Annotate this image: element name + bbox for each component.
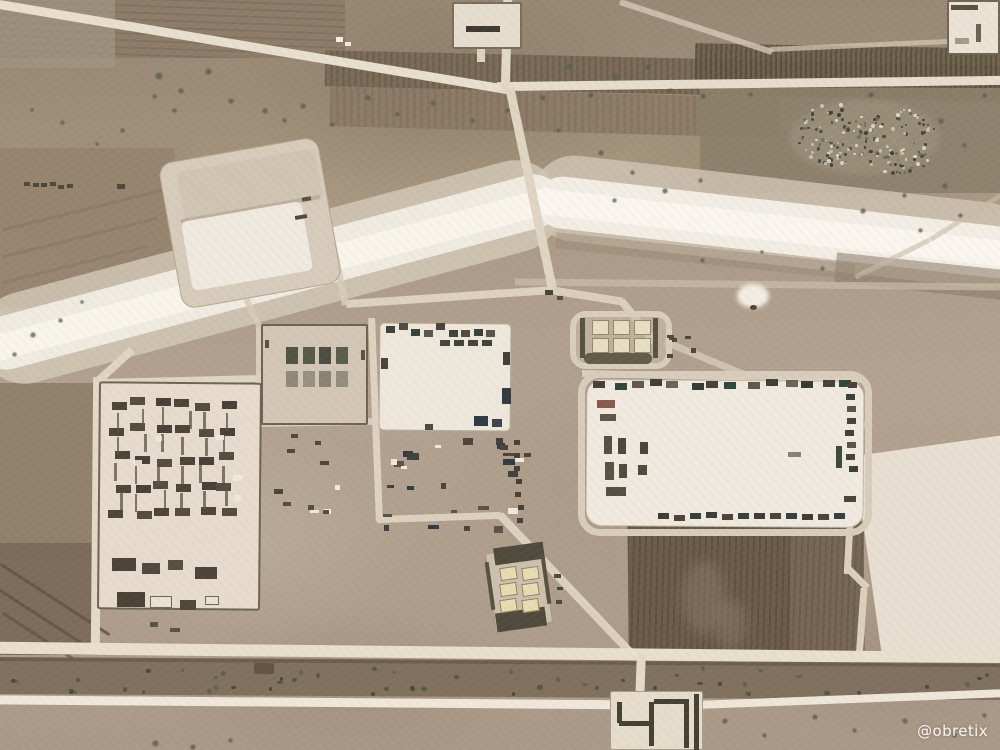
boneyard-speckle-east bbox=[926, 159, 928, 161]
equipment-scatter-field bbox=[500, 445, 508, 450]
east-compound-top-vehicles bbox=[593, 381, 605, 388]
facility-south-east-marks bbox=[554, 574, 561, 577]
boneyard-speckle-east bbox=[922, 119, 924, 121]
boneyard-speckle-east bbox=[869, 128, 873, 132]
boneyard-speckle-west bbox=[818, 159, 821, 162]
compound-top-right-b1 bbox=[951, 5, 978, 10]
vegetation-shrub bbox=[190, 744, 196, 750]
vegetation-shrub bbox=[630, 170, 635, 175]
canal-vegetation bbox=[824, 691, 830, 694]
road-center-south-1 bbox=[377, 512, 501, 523]
junction-vehicle-1 bbox=[545, 290, 553, 295]
boneyard-speckle-east bbox=[891, 127, 895, 131]
scatter-between-compounds bbox=[310, 510, 319, 513]
boneyard-speckle-west bbox=[831, 111, 834, 114]
boneyard-speckle-west bbox=[829, 150, 833, 154]
vegetation-shrub bbox=[556, 128, 561, 133]
facility-north-cells bbox=[634, 320, 651, 335]
vegetation-shrub bbox=[30, 332, 36, 338]
facility-south-east-marks bbox=[557, 587, 563, 590]
barracks-connector-walls bbox=[135, 494, 138, 512]
truck-7-body bbox=[606, 487, 626, 496]
vegetation-shrub bbox=[12, 352, 17, 357]
barracks-row-block-a bbox=[222, 401, 237, 409]
boneyard-speckle-east bbox=[905, 158, 907, 160]
barracks-connector-walls bbox=[164, 490, 167, 508]
vegetation-shrub bbox=[962, 143, 967, 148]
compound-c-containers bbox=[449, 330, 458, 337]
canal-vegetation bbox=[556, 677, 560, 682]
vehicle-west-single bbox=[117, 184, 125, 189]
equipment-scatter-field bbox=[503, 459, 514, 465]
canal-vegetation bbox=[15, 680, 19, 683]
vegetation-shrub bbox=[330, 122, 335, 127]
barracks-south-b4 bbox=[195, 567, 217, 579]
boneyard-speckle-east bbox=[864, 131, 868, 135]
facility-south-cells bbox=[499, 566, 518, 581]
canal-vegetation bbox=[582, 683, 588, 686]
barracks-connector-walls bbox=[142, 409, 145, 427]
truck-1-body bbox=[597, 400, 617, 408]
boneyard-speckle-east bbox=[922, 123, 925, 126]
boneyard-speckle-east bbox=[882, 135, 886, 139]
compound-south-wall-5 bbox=[684, 699, 689, 748]
barracks-outer-mark-2 bbox=[170, 628, 180, 632]
canal-vegetation bbox=[392, 671, 396, 674]
vehicle-d-mid-2 bbox=[638, 465, 647, 475]
barracks-connector-walls bbox=[222, 466, 225, 484]
east-compound-bottom-row bbox=[770, 513, 781, 519]
vegetation-shrub bbox=[300, 103, 306, 109]
vehicle-row-west bbox=[24, 182, 30, 186]
facility-south-east-marks bbox=[556, 600, 562, 604]
facility-north-cells bbox=[613, 320, 630, 335]
field-plowed-south-light bbox=[790, 522, 864, 652]
boneyard-speckle-west bbox=[841, 118, 844, 121]
barracks-connector-walls bbox=[181, 466, 184, 484]
compound-b-wall-mark-2 bbox=[361, 350, 365, 360]
barracks-row-block-b bbox=[153, 481, 168, 489]
vegetation-shrub bbox=[178, 88, 184, 94]
east-compound-right-column bbox=[847, 406, 856, 412]
east-compound-bottom-row bbox=[834, 513, 845, 519]
canal-vegetation bbox=[653, 686, 657, 689]
compound-b-gray-row bbox=[336, 371, 348, 387]
equipment-line-east bbox=[517, 518, 523, 523]
canal-vegetation bbox=[509, 670, 513, 673]
boneyard-speckle-east bbox=[926, 128, 930, 132]
equipment-scatter-field bbox=[508, 508, 518, 514]
barracks-white-roofs bbox=[234, 475, 243, 479]
compound-c-containers bbox=[411, 329, 420, 336]
compound-c-containers bbox=[424, 330, 433, 337]
boneyard-speckle-west bbox=[815, 128, 818, 131]
compound-c-containers bbox=[399, 323, 408, 330]
east-compound-top-vehicles bbox=[666, 381, 678, 388]
east-compound-right-column bbox=[847, 442, 856, 448]
boneyard-speckle-west bbox=[800, 127, 803, 130]
equipment-scatter-field bbox=[407, 486, 414, 490]
boneyard-speckle-east bbox=[922, 165, 924, 167]
barracks-white-roofs bbox=[133, 460, 142, 464]
boneyard-speckle-west bbox=[840, 161, 844, 165]
barracks-connector-walls bbox=[162, 407, 165, 425]
vegetation-shrub bbox=[902, 718, 908, 724]
barracks-row-block-b bbox=[176, 484, 191, 492]
compound-c-containers-2 bbox=[482, 340, 492, 346]
barracks-south-b2 bbox=[142, 563, 160, 574]
truck-2-cab bbox=[616, 414, 622, 421]
boneyard-speckle-east bbox=[918, 153, 921, 156]
facility-north-east-dots bbox=[691, 348, 695, 353]
facility-north-cells bbox=[592, 320, 609, 335]
vegetation-shrub bbox=[700, 258, 705, 263]
compound-c-item-e2 bbox=[502, 388, 511, 404]
east-compound-top-vehicles bbox=[823, 380, 835, 387]
boneyard-speckle-west bbox=[827, 159, 831, 163]
barracks-connector-walls bbox=[114, 463, 117, 481]
barracks-south-b8 bbox=[205, 596, 219, 605]
boneyard-speckle-east bbox=[918, 122, 921, 125]
vehicle-b-south-2 bbox=[287, 449, 295, 453]
east-compound-bottom-row bbox=[802, 514, 813, 520]
boneyard-speckle-east bbox=[875, 138, 879, 142]
east-compound-top-vehicles bbox=[766, 379, 778, 386]
vegetation-shrub bbox=[80, 300, 84, 304]
canal-vegetation bbox=[747, 692, 751, 696]
boneyard-speckle-west bbox=[860, 124, 862, 126]
east-compound-bottom-row bbox=[674, 515, 685, 521]
vegetation-shrub bbox=[662, 188, 668, 194]
truck-5 bbox=[605, 462, 614, 480]
scatter-between-compounds bbox=[274, 489, 282, 494]
boneyard-speckle-west bbox=[798, 142, 800, 144]
vegetation-shrub bbox=[982, 93, 987, 98]
east-compound-top-vehicles bbox=[692, 383, 704, 390]
truck-1-cab bbox=[615, 400, 622, 408]
vegetation-shrub bbox=[860, 208, 866, 214]
boneyard-gap-west bbox=[822, 126, 842, 142]
equipment-scatter-field bbox=[391, 459, 397, 465]
east-compound-se-item bbox=[844, 496, 856, 502]
barracks-white-roofs bbox=[156, 436, 162, 441]
boneyard-speckle-east bbox=[927, 124, 929, 126]
boneyard-speckle-west bbox=[847, 148, 849, 150]
barracks-connector-walls bbox=[199, 465, 202, 483]
vegetation-shrub bbox=[852, 728, 857, 733]
boneyard-speckle-east bbox=[913, 114, 916, 117]
canal-vegetation bbox=[758, 669, 763, 673]
vegetation-shrub bbox=[612, 74, 619, 81]
boneyard-speckle-west bbox=[844, 153, 847, 156]
vegetation-shrub bbox=[120, 128, 125, 133]
boneyard-speckle-west bbox=[803, 127, 807, 131]
vegetation-shrub bbox=[228, 98, 234, 104]
canal-vegetation bbox=[146, 669, 150, 673]
facility-north-berm-s bbox=[584, 353, 652, 364]
barracks-south-b7 bbox=[180, 600, 196, 610]
boneyard-speckle-west bbox=[842, 143, 844, 145]
vegetation-shrub bbox=[612, 198, 617, 203]
boneyard-speckle-west bbox=[845, 161, 847, 163]
boneyard-speckle-east bbox=[891, 171, 895, 175]
east-compound-bottom-row bbox=[722, 514, 733, 520]
vegetation-shrub bbox=[228, 738, 233, 743]
compound-c-pad bbox=[379, 322, 512, 431]
barracks-south-b6 bbox=[150, 596, 172, 608]
east-compound-right-column bbox=[847, 418, 856, 424]
compound-c-item-s1 bbox=[474, 416, 488, 426]
equipment-scatter-field bbox=[407, 453, 418, 460]
east-compound-bottom-row bbox=[754, 513, 765, 519]
boneyard-speckle-west bbox=[815, 139, 818, 142]
east-compound-pad bbox=[585, 379, 864, 528]
east-compound-bottom-row bbox=[818, 514, 829, 520]
vegetation-shrub bbox=[918, 228, 923, 233]
vehicle-road-white-2 bbox=[345, 42, 351, 46]
barracks-connector-walls bbox=[144, 434, 147, 452]
vehicle-b-south-3 bbox=[315, 441, 321, 445]
boneyard-speckle-west bbox=[830, 163, 833, 166]
canal-vegetation bbox=[372, 667, 377, 671]
pad-far-east bbox=[854, 434, 1000, 669]
compound-c-containers bbox=[461, 330, 470, 337]
barracks-row-block-a bbox=[112, 402, 127, 410]
compound-b-gray-row bbox=[286, 371, 298, 387]
equipment-scatter-field bbox=[524, 453, 531, 457]
vegetation-shrub bbox=[760, 250, 764, 254]
boneyard-speckle-east bbox=[890, 151, 894, 155]
compound-top-right-b2 bbox=[976, 24, 981, 42]
vegetation-shrub bbox=[668, 88, 673, 93]
vegetation-shrub bbox=[95, 142, 99, 146]
vehicle-road-white-1 bbox=[336, 37, 343, 42]
east-compound-right-column bbox=[849, 466, 858, 472]
east-compound-bottom-row bbox=[706, 512, 717, 518]
barracks-row-block-a bbox=[157, 425, 172, 433]
boneyard-speckle-west bbox=[839, 152, 842, 155]
east-compound-top-vehicles bbox=[801, 381, 813, 388]
terrain-features-layer bbox=[0, 0, 1000, 750]
compound-b-gray-row bbox=[319, 371, 331, 387]
equipment-line-east bbox=[516, 479, 522, 484]
east-compound-right-column bbox=[848, 382, 857, 388]
vegetation-shrub bbox=[905, 58, 910, 63]
barracks-south-b3 bbox=[168, 560, 183, 570]
boneyard-speckle-west bbox=[805, 149, 807, 151]
compound-b-wall-mark-1 bbox=[265, 340, 269, 348]
equipment-scatter-field bbox=[401, 466, 408, 469]
compound-top-center-building bbox=[466, 26, 500, 32]
scatter-between-compounds bbox=[283, 502, 291, 506]
boneyard-speckle-east bbox=[933, 128, 935, 130]
boneyard-speckle-west bbox=[835, 119, 838, 122]
boneyard-speckle-east bbox=[924, 153, 927, 156]
barracks-connector-walls bbox=[225, 488, 228, 506]
east-compound-right-column bbox=[846, 394, 855, 400]
vegetation-shrub bbox=[262, 108, 268, 114]
boneyard-speckle-west bbox=[840, 108, 844, 112]
compound-south-wall-1 bbox=[617, 702, 622, 723]
vegetation-shrub bbox=[155, 72, 163, 80]
vegetation-shrub bbox=[812, 714, 818, 720]
boneyard-speckle-west bbox=[853, 130, 855, 132]
vegetation-shrub bbox=[938, 118, 944, 124]
compound-c-item-s2 bbox=[492, 419, 502, 427]
vegetation-shrub bbox=[700, 93, 706, 99]
boneyard-speckle-west bbox=[820, 104, 824, 108]
field-light-streak-2 bbox=[715, 598, 747, 650]
barracks-south-b5 bbox=[117, 592, 145, 607]
vegetation-shrub bbox=[722, 718, 728, 724]
vegetation-shrub bbox=[868, 92, 874, 98]
facility-north-cells bbox=[613, 338, 630, 353]
vegetation-shrub bbox=[365, 95, 371, 101]
vehicle-b-south-1 bbox=[291, 434, 298, 438]
facility-south-cells bbox=[521, 566, 540, 581]
equipment-scatter-field bbox=[451, 510, 457, 513]
equipment-scatter-field bbox=[515, 458, 524, 462]
compound-b-green-row bbox=[286, 347, 298, 364]
truck-3 bbox=[604, 436, 612, 454]
equipment-scatter-field bbox=[496, 438, 504, 445]
barracks-connector-walls bbox=[157, 466, 160, 484]
vegetation-shrub bbox=[698, 178, 703, 183]
equipment-line-east bbox=[518, 505, 524, 510]
equipment-scatter-field bbox=[463, 438, 474, 445]
equipment-scatter-field bbox=[503, 453, 515, 457]
barracks-row-block-b bbox=[116, 485, 131, 493]
barracks-row-block-a bbox=[199, 429, 214, 437]
boneyard-speckle-west bbox=[809, 155, 813, 159]
equipment-line-east bbox=[514, 466, 520, 471]
boneyard-speckle-east bbox=[908, 169, 912, 173]
east-compound-bottom-row bbox=[690, 513, 701, 519]
vehicle-row-west bbox=[58, 185, 64, 189]
east-compound-top-vehicles bbox=[650, 379, 662, 386]
compound-c-item-s3 bbox=[425, 424, 433, 430]
boneyard-speckle-west bbox=[831, 121, 833, 123]
scatter-between-compounds bbox=[335, 485, 341, 490]
equipment-scatter-field bbox=[508, 471, 518, 478]
canal-vegetation bbox=[384, 687, 389, 691]
compound-c-containers bbox=[386, 326, 395, 333]
canal-vegetation bbox=[181, 669, 184, 672]
east-compound-top-vehicles bbox=[706, 381, 718, 388]
east-compound-top-vehicles bbox=[632, 381, 644, 388]
boneyard-speckle-east bbox=[869, 150, 873, 154]
canal-vegetation bbox=[142, 690, 145, 694]
barracks-connector-walls bbox=[117, 413, 120, 431]
barracks-row-block-a bbox=[130, 397, 145, 405]
vehicle-row-west bbox=[50, 182, 56, 186]
boneyard-speckle-west bbox=[864, 125, 866, 127]
compound-c-containers-2 bbox=[440, 340, 450, 346]
compound-top-center-road bbox=[477, 49, 485, 62]
boneyard-speckle-west bbox=[858, 154, 860, 156]
vegetation-shrub bbox=[540, 95, 546, 101]
boneyard-speckle-east bbox=[896, 171, 898, 173]
compound-south-wall-6 bbox=[694, 694, 699, 750]
vegetation-shrub bbox=[902, 193, 907, 198]
canal-vegetation bbox=[69, 689, 74, 694]
barracks-white-roofs bbox=[234, 495, 241, 501]
barracks-row-block-a bbox=[175, 425, 190, 433]
barracks-row-block-c bbox=[108, 510, 123, 518]
vehicle-d-mid-1 bbox=[640, 442, 648, 454]
barracks-row-block-a bbox=[195, 403, 210, 411]
vegetation-shrub bbox=[726, 70, 731, 75]
boneyard-speckle-east bbox=[879, 125, 882, 128]
equipment-line-east bbox=[514, 440, 520, 445]
road-south-second-west bbox=[0, 695, 655, 709]
watermark: @obretix bbox=[917, 722, 988, 740]
vegetation-shrub bbox=[982, 713, 987, 718]
facility-north-east-dots bbox=[685, 336, 691, 339]
compound-top-right-b3 bbox=[955, 38, 969, 44]
compound-c-containers bbox=[474, 329, 483, 336]
vegetation-shrub bbox=[958, 213, 963, 218]
vegetation-shrub bbox=[395, 112, 400, 117]
facility-north-east-dots bbox=[672, 338, 677, 342]
barracks-white-roofs bbox=[216, 435, 224, 440]
vegetation-shrub bbox=[152, 740, 159, 747]
container-white bbox=[596, 428, 606, 434]
vegetation-shrub bbox=[430, 100, 436, 106]
east-compound-right-column bbox=[846, 454, 855, 460]
facility-south-cells bbox=[499, 598, 518, 613]
vegetation-shrub bbox=[282, 118, 287, 123]
canal-vegetation bbox=[231, 686, 236, 689]
boneyard-speckle-east bbox=[876, 155, 879, 158]
vegetation-shrub bbox=[820, 266, 825, 271]
equipment-scatter-field bbox=[494, 526, 503, 533]
canal-culvert bbox=[254, 663, 274, 675]
white-patch-mark bbox=[750, 305, 757, 310]
compound-c-containers-2 bbox=[468, 340, 478, 346]
truck-6 bbox=[619, 464, 627, 478]
boneyard-speckle-east bbox=[894, 163, 897, 166]
east-compound-bottom-row bbox=[786, 513, 797, 519]
east-compound-center-mark bbox=[788, 452, 801, 457]
compound-south-wall-4 bbox=[654, 699, 686, 704]
compound-c-item-e1 bbox=[503, 352, 510, 365]
barracks-row-block-b bbox=[136, 485, 151, 493]
boneyard-speckle-east bbox=[883, 170, 887, 174]
facility-north-berm-w bbox=[580, 318, 585, 358]
vehicle-row-west bbox=[41, 183, 47, 187]
barracks-row-block-a bbox=[174, 399, 189, 407]
boneyard-speckle-west bbox=[865, 137, 868, 140]
vehicle-row-west bbox=[67, 184, 73, 188]
compound-south-wall-3 bbox=[649, 702, 654, 746]
vegetation-shrub bbox=[588, 92, 594, 98]
vegetation-shrub bbox=[470, 118, 475, 123]
boneyard-speckle-east bbox=[861, 153, 864, 156]
boneyard-speckle-east bbox=[922, 131, 925, 134]
canal-vegetation bbox=[701, 666, 706, 670]
vegetation-shrub bbox=[645, 64, 651, 70]
vegetation-shrub bbox=[566, 63, 573, 70]
boneyard-speckle-west bbox=[839, 103, 842, 106]
barracks-row-block-b bbox=[199, 457, 214, 465]
boneyard-speckle-west bbox=[811, 112, 814, 115]
canal-vegetation bbox=[965, 682, 969, 687]
barracks-connector-walls bbox=[226, 413, 229, 431]
boneyard-speckle-west bbox=[807, 127, 809, 129]
vegetation-shrub bbox=[30, 108, 34, 112]
equipment-scatter-field bbox=[435, 445, 441, 448]
